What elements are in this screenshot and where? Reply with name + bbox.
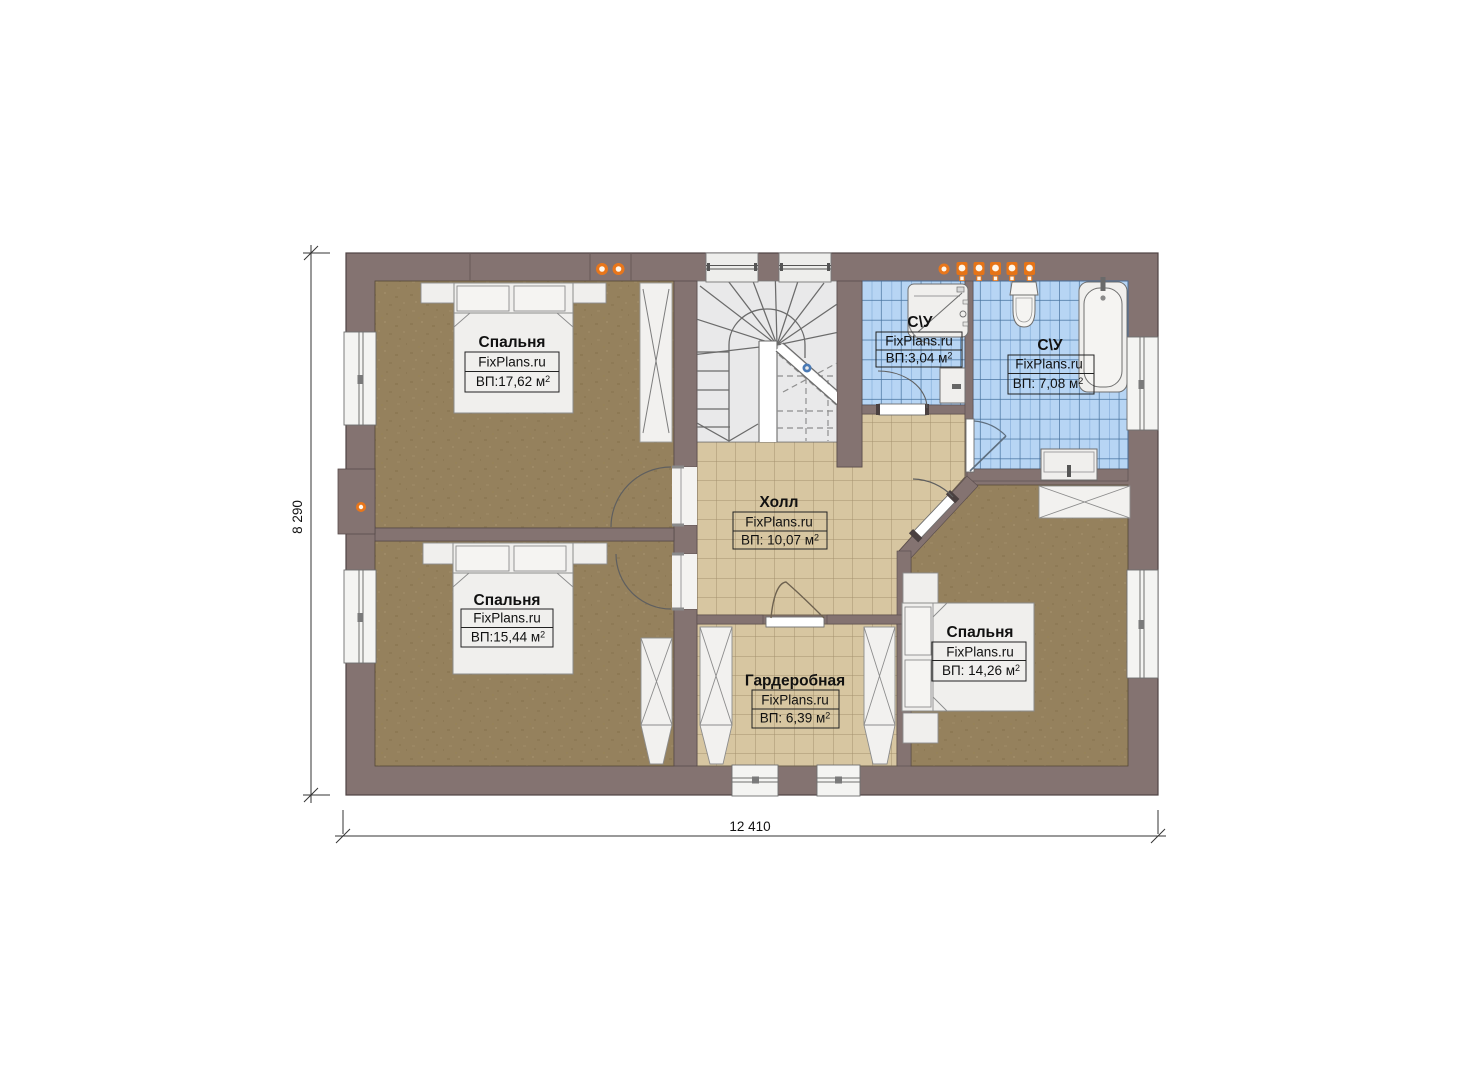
svg-text:FixPlans.ru: FixPlans.ru xyxy=(761,693,829,708)
svg-text:Спальня: Спальня xyxy=(474,592,541,609)
svg-text:ВП: 14,26 м2: ВП: 14,26 м2 xyxy=(942,663,1020,678)
svg-text:Холл: Холл xyxy=(760,494,799,511)
svg-text:FixPlans.ru: FixPlans.ru xyxy=(473,611,541,626)
svg-text:Спальня: Спальня xyxy=(479,334,546,351)
svg-text:ВП:3,04 м2: ВП:3,04 м2 xyxy=(886,351,953,366)
svg-text:ВП:15,44 м2: ВП:15,44 м2 xyxy=(471,630,545,645)
svg-text:12 410: 12 410 xyxy=(729,819,770,834)
svg-text:Гардеробная: Гардеробная xyxy=(745,673,845,690)
svg-text:FixPlans.ru: FixPlans.ru xyxy=(1015,357,1083,372)
svg-text:ВП: 7,08 м2: ВП: 7,08 м2 xyxy=(1013,376,1084,391)
svg-text:С\У: С\У xyxy=(1037,337,1063,354)
svg-text:FixPlans.ru: FixPlans.ru xyxy=(885,334,953,349)
svg-text:ВП:17,62 м2: ВП:17,62 м2 xyxy=(476,374,550,389)
svg-text:Спальня: Спальня xyxy=(947,624,1014,641)
svg-text:FixPlans.ru: FixPlans.ru xyxy=(946,645,1014,660)
svg-text:ВП: 6,39 м2: ВП: 6,39 м2 xyxy=(760,711,831,726)
svg-text:FixPlans.ru: FixPlans.ru xyxy=(478,355,546,370)
svg-text:С\У: С\У xyxy=(907,314,933,331)
svg-text:FixPlans.ru: FixPlans.ru xyxy=(745,515,813,530)
svg-text:8 290: 8 290 xyxy=(290,500,305,534)
svg-text:ВП: 10,07 м2: ВП: 10,07 м2 xyxy=(741,533,819,548)
